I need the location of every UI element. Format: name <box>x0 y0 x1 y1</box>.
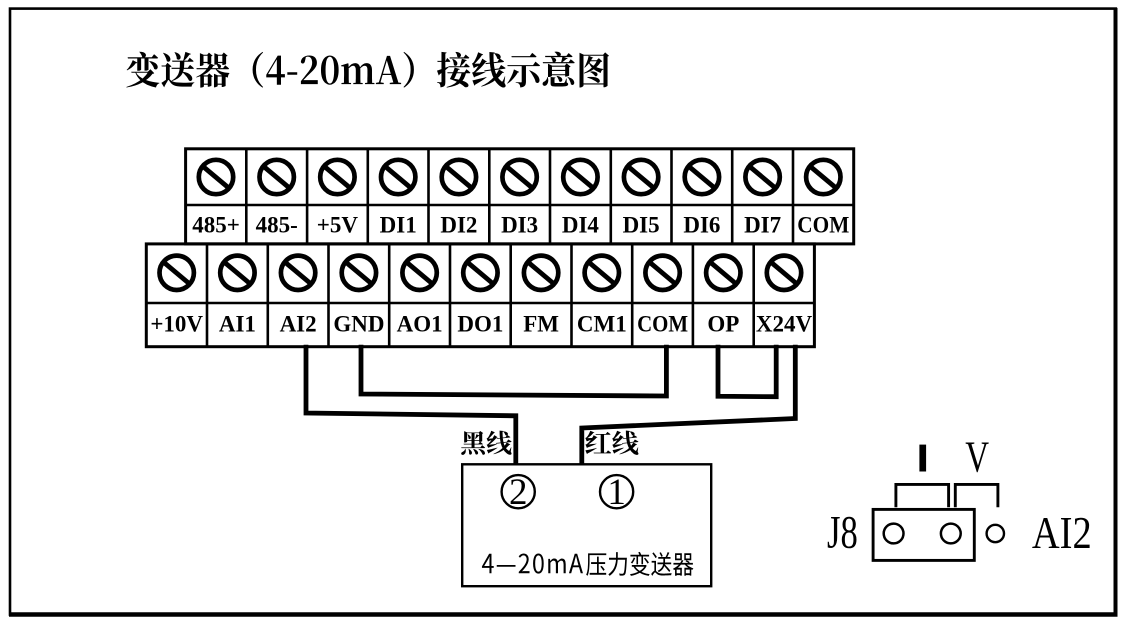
svg-text:V: V <box>965 432 989 481</box>
svg-text:FM: FM <box>523 311 559 336</box>
svg-text:+10V: +10V <box>150 311 203 336</box>
svg-text:AI1: AI1 <box>219 311 256 336</box>
svg-text:GND: GND <box>333 311 384 336</box>
svg-text:DI5: DI5 <box>623 213 660 238</box>
svg-text:485-: 485- <box>256 213 298 238</box>
svg-text:X24V: X24V <box>756 311 813 336</box>
svg-text:1: 1 <box>607 472 626 513</box>
svg-text:DO1: DO1 <box>457 311 503 336</box>
svg-text:DI2: DI2 <box>440 213 477 238</box>
svg-text:+5V: +5V <box>317 213 359 238</box>
svg-text:2: 2 <box>509 472 528 513</box>
svg-text:OP: OP <box>707 311 739 336</box>
svg-text:DI7: DI7 <box>744 213 781 238</box>
svg-text:CM1: CM1 <box>577 311 627 336</box>
svg-text:J8: J8 <box>827 507 858 559</box>
svg-text:DI6: DI6 <box>683 213 720 238</box>
svg-text:COM: COM <box>797 213 849 238</box>
svg-text:485+: 485+ <box>192 213 240 238</box>
svg-text:AI2: AI2 <box>1032 507 1092 558</box>
svg-text:DI1: DI1 <box>380 213 417 238</box>
svg-text:AO1: AO1 <box>397 311 443 336</box>
svg-text:COM: COM <box>637 311 688 336</box>
svg-text:DI3: DI3 <box>501 213 538 238</box>
svg-text:DI4: DI4 <box>562 213 600 238</box>
svg-text:AI2: AI2 <box>280 311 317 336</box>
